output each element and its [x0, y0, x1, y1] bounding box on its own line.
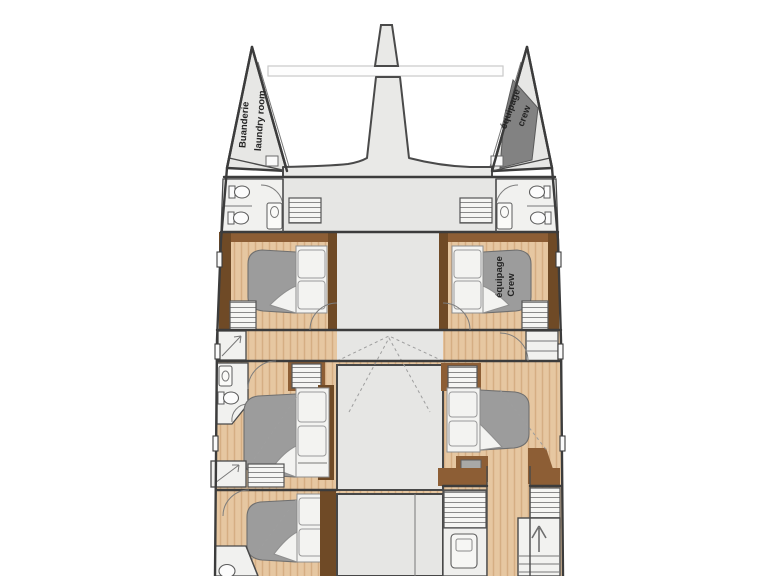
saloon: [337, 365, 443, 490]
toilet-icon: [530, 186, 551, 198]
toilet-icon: [218, 392, 239, 404]
athwartship-passage: [337, 331, 443, 361]
forward-crossbeam: [268, 66, 503, 76]
toilet-icon: [219, 565, 235, 576]
crew-cabin-label-line2: Crew: [506, 273, 517, 297]
cabinet: [530, 468, 560, 486]
cabinet: [526, 331, 558, 361]
sink-icon: [267, 203, 282, 229]
sink-icon: [219, 366, 232, 386]
cabinet-shelves: [444, 491, 486, 528]
forward-passage: [337, 232, 443, 331]
drawer-unit: [230, 301, 256, 330]
wardrobe-shelves: [448, 366, 477, 388]
galley-block: [337, 494, 443, 576]
sink-icon: [497, 203, 512, 229]
crew-cabin-label-line1: équipage: [494, 256, 505, 298]
toilet-icon: [229, 186, 250, 198]
drawer-unit: [522, 301, 548, 330]
toilet-icon: [531, 212, 552, 224]
storage-locker: [289, 198, 321, 223]
companionway-stairs: [518, 518, 560, 576]
storage-locker: [460, 198, 492, 223]
port-forward-cabin-bed: [248, 246, 327, 313]
starboard-forward-crew-bed: équipage Crew: [452, 246, 531, 313]
catamaran-floor-plan: équipage Crew: [0, 0, 768, 576]
floor-plan-drawing: équipage Crew: [0, 0, 768, 576]
starboard-forepeak-bathroom: [496, 179, 558, 232]
cabinet: [438, 468, 487, 486]
port-forepeak-bathroom: [221, 179, 283, 232]
toilet-icon: [228, 212, 249, 224]
wardrobe-shelves: [292, 364, 321, 388]
bowsprit-and-nacelle-spine: [283, 25, 492, 177]
drawer-unit: [248, 464, 284, 487]
